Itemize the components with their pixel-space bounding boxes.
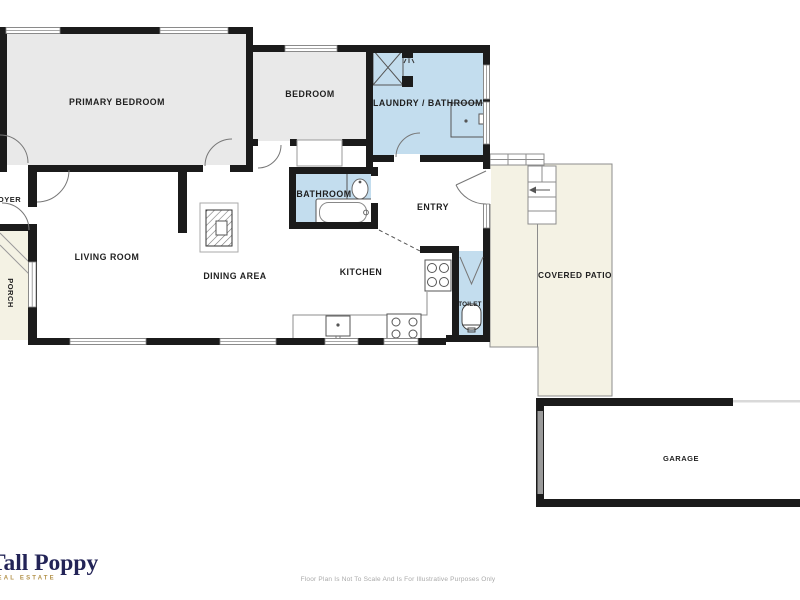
- agency-logo-subtext: REAL ESTATE: [0, 576, 56, 582]
- entry-stoop-steps: [490, 154, 544, 165]
- hall-closet: [297, 140, 342, 166]
- label-primary-bedroom: PRIMARY BEDROOM: [69, 97, 165, 107]
- window: [484, 65, 490, 99]
- toilet-fixture: [462, 304, 481, 332]
- window: [484, 102, 490, 144]
- label-porch: PORCH: [6, 278, 15, 308]
- window: [285, 46, 337, 52]
- cooktop-icon: [425, 260, 451, 291]
- label-toilet: TOILET: [458, 301, 481, 308]
- kitchen-sink: [326, 316, 350, 341]
- disclaimer-text: Floor Plan Is Not To Scale And Is For Il…: [301, 576, 496, 583]
- label-bedroom: BEDROOM: [285, 89, 334, 99]
- door-arc: [37, 170, 69, 202]
- garage-roof-line: [733, 400, 800, 403]
- door-arc: [258, 145, 281, 168]
- patio-stairs: [528, 166, 556, 224]
- garage-door: [538, 411, 544, 494]
- window: [160, 28, 228, 34]
- footer: Floor Plan Is Not To Scale And Is For Il…: [301, 576, 496, 583]
- label-foyer: FOYER: [0, 195, 21, 204]
- window: [70, 339, 146, 345]
- floor-plan-svg: PRIMARY BEDROOM BEDROOM LAUNDRY / BATHRO…: [0, 0, 800, 600]
- branding: Tall Poppy REAL ESTATE: [0, 550, 98, 582]
- stove-icon: [387, 314, 421, 342]
- window: [29, 262, 37, 307]
- floor-plan-page: PRIMARY BEDROOM BEDROOM LAUNDRY / BATHRO…: [0, 0, 800, 600]
- window: [384, 339, 418, 345]
- door-arc: [456, 185, 486, 204]
- window: [484, 204, 490, 228]
- window: [220, 339, 276, 345]
- kitchen-entry-divider: [379, 230, 420, 251]
- agency-logo-text: Tall Poppy: [0, 550, 98, 576]
- label-bathroom: BATHROOM: [296, 189, 351, 199]
- label-living-room: LIVING ROOM: [75, 252, 140, 262]
- fireplace: [200, 203, 238, 252]
- window: [6, 28, 60, 34]
- label-kitchen: KITCHEN: [340, 267, 383, 277]
- label-laundry-bathroom: LAUNDRY / BATHROOM: [373, 98, 483, 108]
- entry-door-leaf: [456, 171, 486, 185]
- bathtub: [316, 199, 373, 226]
- label-covered-patio: COVERED PATIO: [538, 270, 612, 280]
- window: [325, 339, 358, 345]
- label-garage: GARAGE: [663, 454, 699, 463]
- label-entry: ENTRY: [417, 202, 449, 212]
- label-dining-area: DINING AREA: [203, 271, 266, 281]
